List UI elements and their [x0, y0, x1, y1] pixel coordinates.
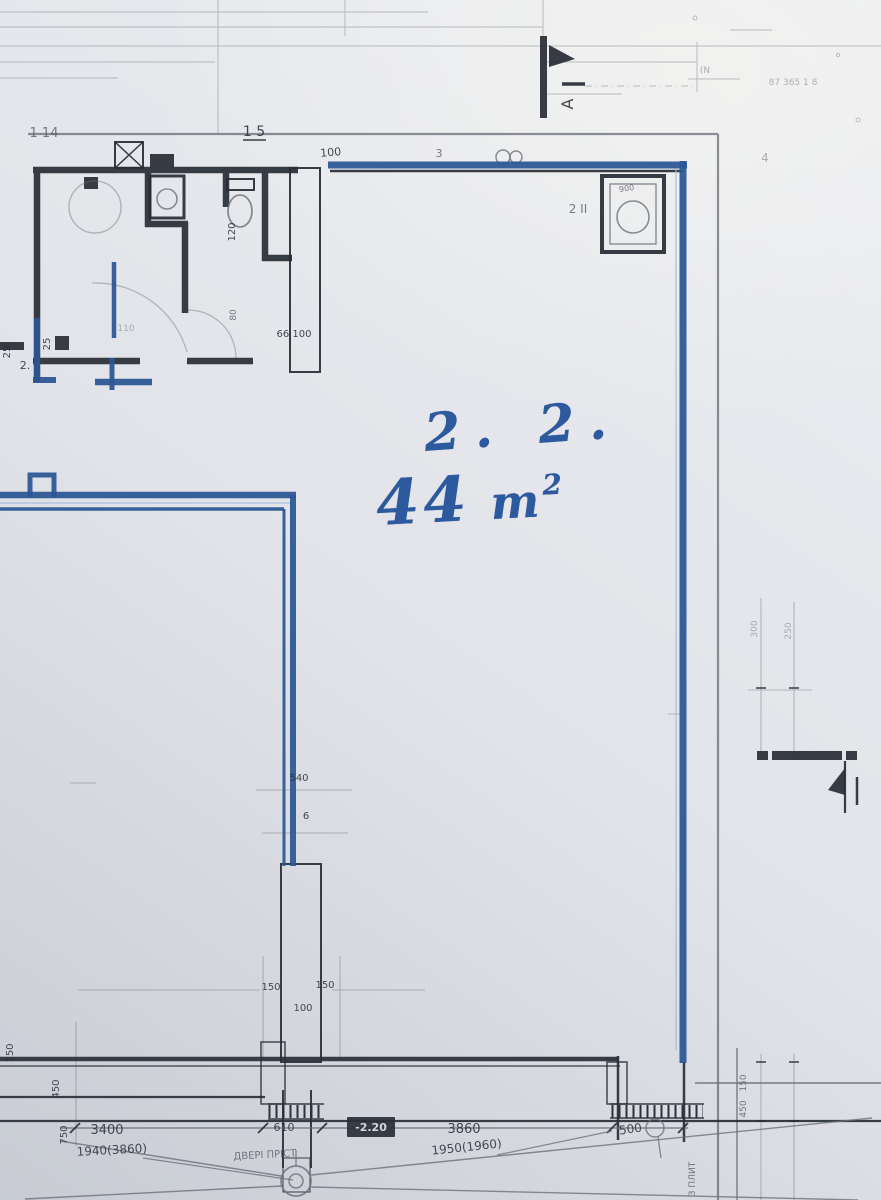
section-letter-a: A: [558, 98, 577, 109]
blueprint-photo: 1 141 510032 II900487 365 1 8(NA25251101…: [0, 0, 881, 1200]
dim-750-bottom-left: 750: [59, 1125, 70, 1144]
grid-mark-top: 1 5: [243, 124, 265, 140]
dim-900-shaft: 900: [618, 183, 634, 194]
dim-540-wall: 540: [289, 773, 308, 784]
dim-25-edge: 25: [2, 346, 13, 359]
dim-66-100: 66 100: [277, 329, 312, 340]
dim-100-column: 100: [293, 1003, 312, 1014]
dim-3860: 3860: [447, 1122, 480, 1137]
dim-110-bath: 110: [117, 324, 134, 334]
dim-6-wall: 6: [303, 811, 309, 822]
pencil-guide-lines: [0, 0, 881, 1200]
bathroom-fixtures: [69, 142, 522, 233]
wall-fixture-icon: [510, 151, 522, 163]
dim-450-bottom-left: 450: [51, 1079, 62, 1098]
floor-plan-svg: 1 141 510032 II900487 365 1 8(NA25251101…: [0, 0, 881, 1200]
dim-150-bottom-left: 150: [5, 1043, 16, 1062]
sink-basin-icon: [157, 189, 177, 209]
doc-number-top-right: 87 365 1 8: [769, 78, 818, 88]
dim-total-left: 1940(3860): [76, 1141, 147, 1159]
dim-450-bottom-right: 450: [739, 1100, 749, 1117]
sink-fixture: [150, 176, 184, 218]
masonry-columns: [281, 168, 321, 1062]
dim-500: 500: [618, 1121, 643, 1138]
note-n-top-right: (N: [700, 66, 710, 76]
ref-4-top-right: 4: [761, 151, 769, 165]
dim-3400: 3400: [90, 1123, 123, 1138]
toilet-tank: [227, 179, 254, 190]
tick-3-top: 3: [436, 147, 443, 160]
dim-25-wall: 25: [42, 338, 53, 351]
section-mark-right: [757, 751, 857, 813]
shaft-room-label: 2 II: [569, 202, 588, 216]
shaft-duct-icon: [617, 201, 649, 233]
dimension-lines: [60, 140, 799, 1180]
label-2-bath: 2.: [20, 359, 31, 372]
dim-120-wc: 120: [227, 222, 238, 241]
dim-150-column-left: 150: [261, 982, 280, 993]
labels-layer: 1 141 510032 II900487 365 1 8(NA25251101…: [2, 66, 818, 1196]
dim-80-wc: 80: [229, 309, 239, 321]
elevation-mark: -2.20: [355, 1121, 387, 1134]
dim-150-column-right: 150: [315, 980, 334, 991]
bathroom-walls: [0, 154, 683, 382]
building-outline: [28, 134, 881, 1200]
dim-total-right: 1950(1960): [431, 1136, 503, 1157]
dim-right-mid-1: 300: [750, 620, 760, 637]
grid-mark-top-left: 1 14: [30, 126, 59, 141]
note-vertical-bottom-right: З ПЛИТ: [688, 1161, 698, 1196]
note-doors: ДВЕРІ ПРІСТ: [233, 1148, 297, 1162]
dim-100-top: 100: [320, 145, 342, 160]
vent-box-icon: [115, 142, 143, 168]
dim-right-mid-2: 250: [784, 622, 794, 639]
dim-150-bottom-right: 150: [739, 1074, 749, 1091]
toilet-bowl-icon: [228, 195, 252, 227]
dim-610: 610: [274, 1121, 295, 1134]
unit-outline-marker: [0, 161, 687, 1063]
